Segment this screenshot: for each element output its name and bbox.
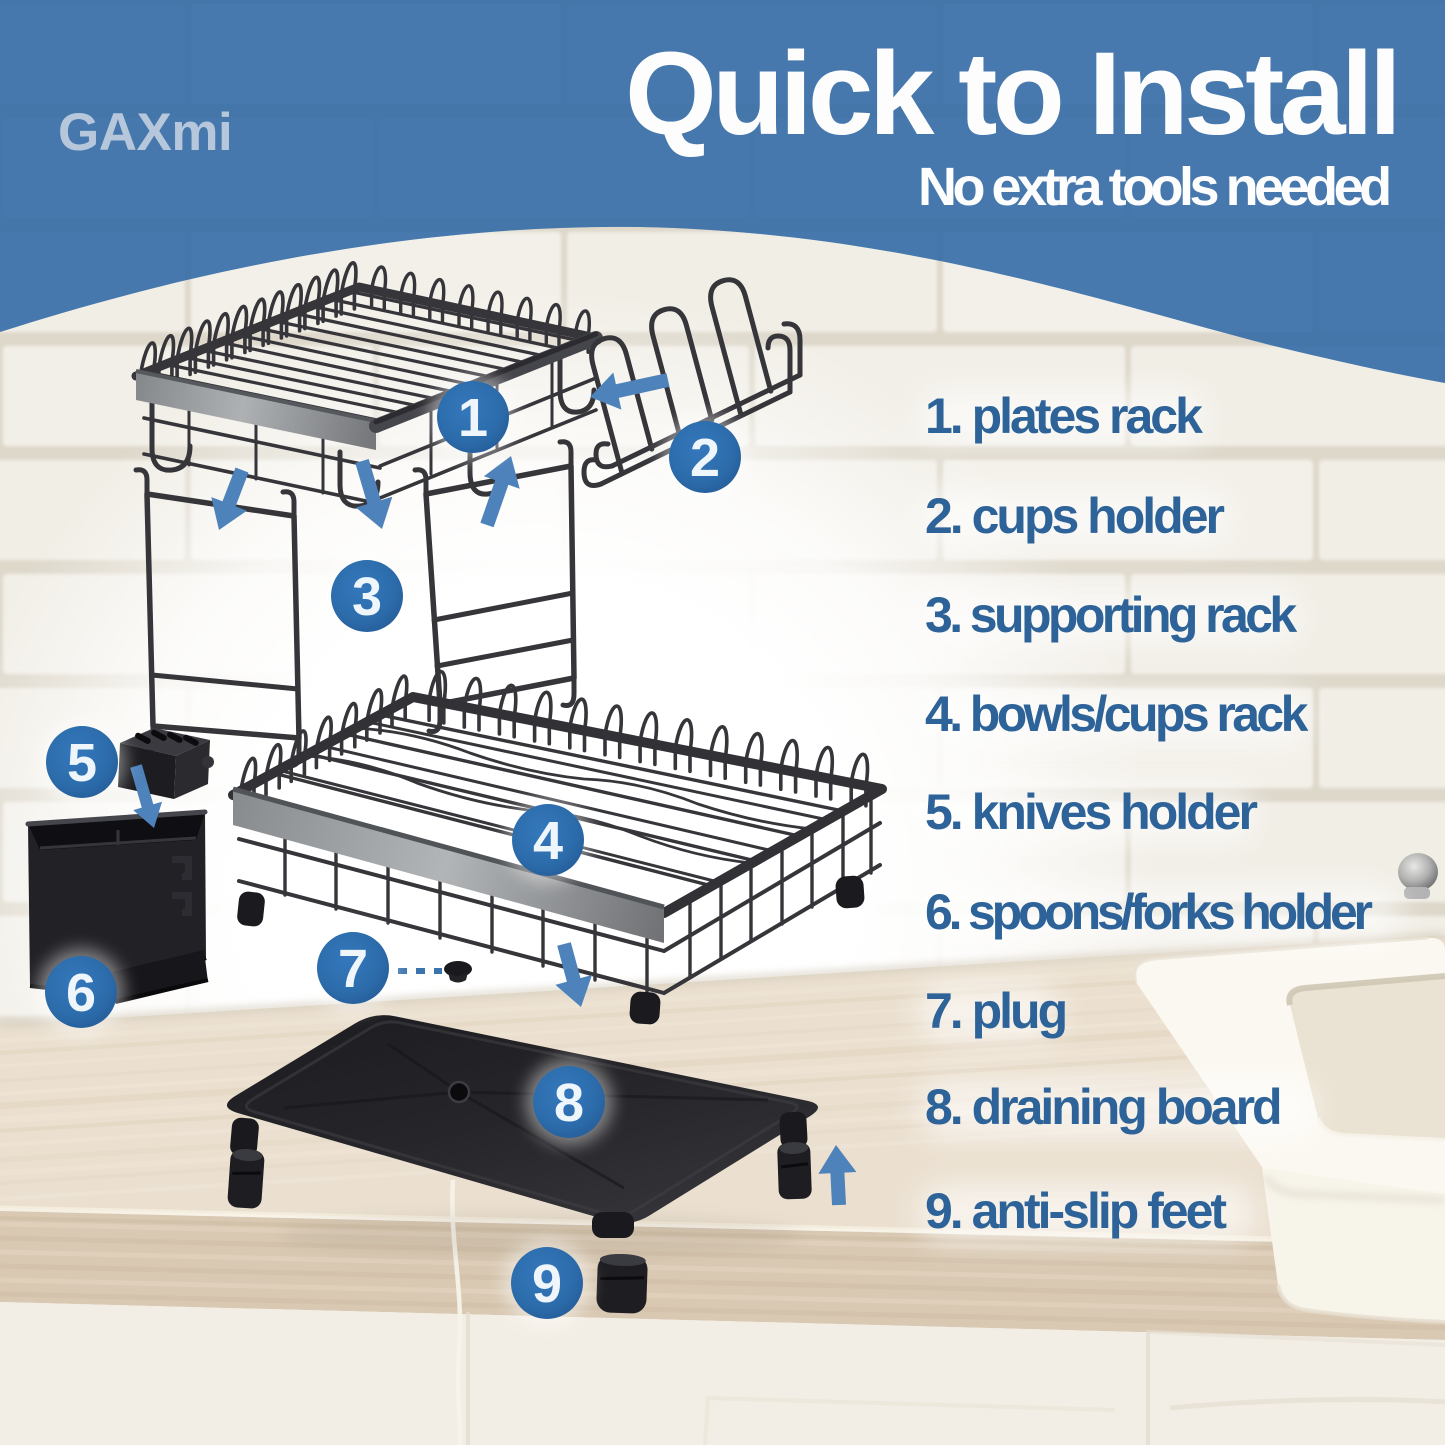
svg-text:Quick to Install: Quick to Install: [625, 28, 1397, 160]
svg-text:1. plates rack: 1. plates rack: [925, 388, 1203, 444]
svg-text:5: 5: [67, 733, 97, 793]
svg-text:4. bowls/cups rack: 4. bowls/cups rack: [925, 686, 1309, 742]
svg-text:9. anti-slip feet: 9. anti-slip feet: [925, 1183, 1227, 1239]
svg-text:5. knives holder: 5. knives holder: [925, 784, 1257, 840]
svg-text:No extra tools needed: No extra tools needed: [918, 157, 1389, 217]
svg-text:7. plug: 7. plug: [925, 983, 1066, 1039]
svg-text:8: 8: [554, 1073, 584, 1133]
svg-text:7: 7: [338, 939, 368, 999]
svg-text:GAXmi: GAXmi: [58, 103, 232, 162]
svg-text:6: 6: [66, 963, 96, 1023]
svg-text:2. cups holder: 2. cups holder: [925, 488, 1225, 544]
svg-text:8. draining board: 8. draining board: [925, 1079, 1280, 1135]
svg-text:3. supporting rack: 3. supporting rack: [925, 587, 1297, 643]
svg-text:6. spoons/forks holder: 6. spoons/forks holder: [925, 884, 1373, 940]
svg-text:3: 3: [352, 567, 382, 627]
svg-text:1: 1: [458, 388, 488, 448]
svg-text:4: 4: [533, 811, 563, 871]
svg-text:9: 9: [532, 1254, 562, 1314]
svg-text:2: 2: [690, 428, 720, 488]
